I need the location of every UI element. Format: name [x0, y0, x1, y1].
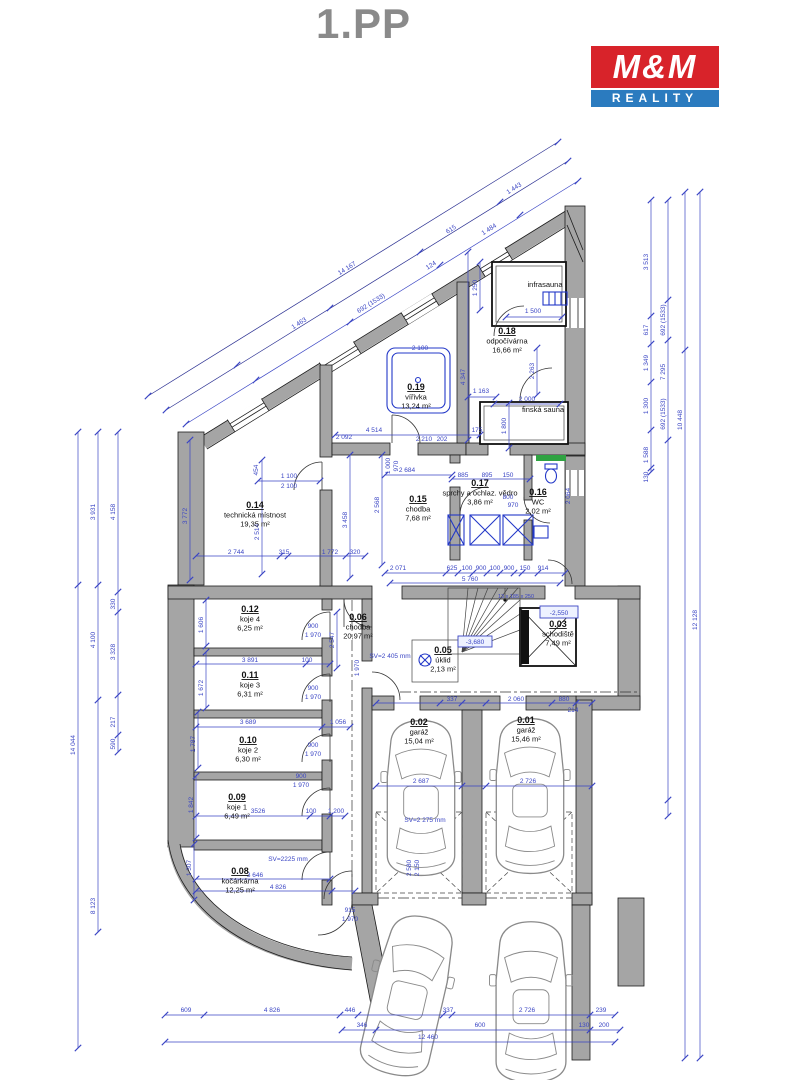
- room-number: 0.02: [410, 717, 428, 727]
- green-window-marker: [536, 455, 566, 461]
- dimension-label: 214: [568, 707, 579, 714]
- dimension-label: 100: [462, 565, 473, 572]
- dimension-label: 2 210: [416, 436, 433, 443]
- dimension-label: 2 060: [508, 696, 525, 703]
- room-number: 0.14: [246, 500, 264, 510]
- dimension-label: 1 588: [643, 446, 650, 463]
- dimension-label: 900: [308, 685, 319, 692]
- room-name: garáž: [517, 726, 536, 735]
- dimension-label: 100: [302, 657, 313, 664]
- room-number: 0.09: [228, 792, 246, 802]
- room-name: sprchy a ochlaz. vědro: [442, 489, 517, 498]
- dimension-label: 1 200: [328, 808, 345, 815]
- dimension-label: 692 (1533): [660, 304, 667, 335]
- dimension-label: 2 071: [390, 565, 407, 572]
- dimension-label: 454: [253, 464, 260, 475]
- dimension-label: 590: [110, 738, 117, 749]
- dimension-label: 900: [504, 565, 515, 572]
- dimension-label: 100: [306, 808, 317, 815]
- dimension-label: 4 514: [366, 427, 383, 434]
- room-number: 0.03: [549, 619, 567, 629]
- dimension-label: 1 443: [505, 181, 523, 196]
- dimension-label: 2 726: [520, 778, 537, 785]
- dimension-label: 2 684: [399, 467, 416, 474]
- dimension-label: 337: [443, 1007, 454, 1014]
- dimension-label: 100: [490, 565, 501, 572]
- dimension-label: 692 (1533): [356, 292, 386, 315]
- dimension-label: 900: [476, 565, 487, 572]
- room-name: chodba: [346, 623, 371, 632]
- dimension-label: 320: [350, 549, 361, 556]
- dimension-label: 900: [308, 623, 319, 630]
- level-shaft: -3,680: [466, 639, 485, 646]
- dimension-label: 1 500: [525, 308, 542, 315]
- finska-sauna-label: finská sauna: [522, 405, 565, 414]
- dimension-label: 885: [458, 472, 469, 479]
- dimension-label: 7 295: [660, 363, 667, 380]
- dimension-label: 1 970: [342, 916, 359, 923]
- dimension-label: 1 970: [293, 782, 310, 789]
- dimension-labels: 14 1671 4636151 443692 (1533)1241 4843 5…: [70, 181, 699, 1041]
- infrasauna-label: infrasauna: [527, 280, 563, 289]
- dimension-label: 2 150: [414, 859, 421, 876]
- cleaning-sink: [419, 654, 431, 666]
- dimension-label: 3 772: [182, 507, 189, 524]
- dimension-label: 130: [579, 1022, 590, 1029]
- dimension-label: 239: [596, 1007, 607, 1014]
- room-area: 20,97 m²: [343, 632, 373, 641]
- dimension-label: 2 744: [228, 549, 245, 556]
- room-area: 2,02 m²: [525, 507, 551, 516]
- room-number: 0.05: [434, 645, 452, 655]
- height-note-koje: SV=2225 mm: [268, 856, 308, 863]
- room-number: 0.18: [498, 326, 516, 336]
- dimension-label: 330: [110, 598, 117, 609]
- dimension-label: 617: [643, 324, 650, 335]
- room-name: koje 1: [227, 803, 247, 812]
- room-area: 13,24 m²: [401, 402, 431, 411]
- room-name: odpočívárna: [486, 337, 528, 346]
- dimension-label: 1 100: [281, 473, 298, 480]
- dimension-label: 200: [599, 1022, 610, 1029]
- dimension-label: 914: [538, 565, 549, 572]
- level-stair: -2,550: [550, 610, 569, 617]
- dimension-label: 4 826: [270, 884, 287, 891]
- dimension-label: 1 300: [643, 397, 650, 414]
- dimension-label: 3 891: [242, 657, 259, 664]
- room-area: 6,30 m²: [235, 755, 261, 764]
- height-note-chodba: SV=2 405 mm: [369, 653, 410, 660]
- dimension-label: 1 842: [188, 796, 195, 813]
- dimension-label: 10 448: [677, 410, 684, 430]
- dimension-label: 8 123: [90, 897, 97, 914]
- dimension-label: 1 970: [305, 694, 322, 701]
- dimension-label: 1 250: [472, 279, 479, 296]
- dimension-label: 337: [447, 696, 458, 703]
- room-name: koje 2: [238, 746, 258, 755]
- stair-note: 13 x 185 x 250: [498, 594, 534, 600]
- room-area: 12,25 m²: [225, 886, 255, 895]
- dimension-label: 609: [181, 1007, 192, 1014]
- dimension-label: 1 787: [190, 735, 197, 752]
- height-note-garage: SV=2 275 mm: [404, 817, 445, 824]
- room-number: 0.10: [239, 735, 257, 745]
- dimension-label: 1 349: [643, 354, 650, 371]
- room-area: 15,46 m²: [511, 735, 541, 744]
- dimension-label: 12 128: [692, 610, 699, 630]
- dimension-label: 315: [279, 549, 290, 556]
- room-area: 6,25 m²: [237, 624, 263, 633]
- dimension-label: 1 970: [305, 751, 322, 758]
- dimension-label: 2 100: [281, 483, 298, 490]
- dimension-label: 1 606: [198, 616, 205, 633]
- washbasin: [534, 526, 548, 538]
- toilet: [545, 464, 557, 483]
- dimension-label: 625: [447, 565, 458, 572]
- dimension-label: 1 463: [290, 316, 308, 331]
- dimension-label: 880: [559, 696, 570, 703]
- dimension-label: 446: [345, 1007, 356, 1014]
- room-number: 0.08: [231, 866, 249, 876]
- dimension-label: 3 931: [90, 503, 97, 520]
- room-name: úklid: [435, 656, 450, 665]
- room-number: 0.16: [529, 487, 547, 497]
- room-number: 0.19: [407, 382, 425, 392]
- room-name: chodba: [406, 505, 431, 514]
- dimension-label: 615: [445, 224, 458, 236]
- room-number: 0.11: [241, 670, 258, 680]
- room-area: 3,86 m²: [467, 498, 493, 507]
- dimension-label: 2 000: [519, 396, 536, 403]
- room-name: koje 3: [240, 681, 260, 690]
- room-number: 0.15: [409, 494, 427, 504]
- room-area: 6,49 m²: [224, 812, 250, 821]
- dimension-label: 3 689: [240, 719, 257, 726]
- dimension-label: 4 100: [90, 631, 97, 648]
- room-name: koje 4: [240, 615, 260, 624]
- dimension-label: 1 970: [354, 659, 361, 676]
- room-number: 0.06: [349, 612, 367, 622]
- dimension-label: 4 158: [110, 503, 117, 520]
- dimension-label: 130: [643, 471, 650, 482]
- dimension-label: 5 760: [462, 576, 479, 583]
- dimension-label: 2 263: [529, 362, 536, 379]
- dimension-label: 1 672: [198, 679, 205, 696]
- dimension-label: 150: [503, 472, 514, 479]
- room-area: 6,31 m²: [237, 690, 263, 699]
- dimension-label: 175: [472, 427, 483, 434]
- room-number: 0.01: [517, 715, 535, 725]
- window-icon: [401, 294, 439, 325]
- room-area: 16,66 m²: [492, 346, 522, 355]
- floor-plan-page: 1.PP M&M REALITY: [0, 0, 790, 1080]
- dimension-label: 1 307: [186, 859, 193, 876]
- dimension-label: 1 800: [501, 417, 508, 434]
- room-name: vířivka: [405, 393, 427, 402]
- dimension-label: 692 (1533): [660, 398, 667, 429]
- dimension-label: 970: [393, 460, 400, 471]
- dimension-label: 1 000: [385, 457, 392, 474]
- dimension-label: 202: [437, 436, 448, 443]
- dimension-label: 217: [110, 716, 117, 727]
- dimension-label: 1 056: [330, 719, 347, 726]
- dimension-label: 4 347: [460, 368, 467, 385]
- dimension-label: 346: [357, 1022, 368, 1029]
- dimension-label: 970: [508, 502, 519, 509]
- dimension-label: 14 044: [70, 735, 77, 755]
- room-name: kočárkárna: [221, 877, 259, 886]
- dimension-label: 3 513: [643, 253, 650, 270]
- dimension-label: 1 484: [480, 222, 498, 237]
- room-name: garáž: [410, 728, 429, 737]
- dimension-label: 900: [296, 773, 307, 780]
- window-icon: [566, 298, 584, 328]
- car-driveway-right: [489, 922, 572, 1080]
- dimension-label: 1 163: [473, 388, 490, 395]
- room-area: 15,04 m²: [404, 737, 434, 746]
- dimension-label: 1 772: [322, 549, 339, 556]
- room-area: 19,35 m²: [240, 520, 270, 529]
- room-name: schodiště: [542, 630, 574, 639]
- room-number: 0.17: [471, 478, 489, 488]
- room-number: 0.12: [241, 604, 259, 614]
- dimension-label: 2 092: [336, 434, 353, 441]
- room-name: WC: [532, 498, 545, 507]
- dimension-label: 2 100: [412, 345, 429, 352]
- room-name: technická místnost: [224, 511, 287, 520]
- dimension-label: 124: [425, 260, 438, 272]
- dimension-label: 3 458: [342, 511, 349, 528]
- dimension-label: 2 568: [374, 496, 381, 513]
- room-area: 7,68 m²: [405, 514, 431, 523]
- shower-stalls: [448, 515, 533, 545]
- dimension-label: 3526: [251, 808, 266, 815]
- dimension-label: 2 064: [565, 487, 572, 504]
- room-area: 2,13 m²: [430, 665, 456, 674]
- room-area: 7,49 m²: [545, 639, 571, 648]
- dimension-label: 2 726: [519, 1007, 536, 1014]
- dimension-label: 14 167: [337, 260, 358, 277]
- dimension-label: 4 826: [264, 1007, 281, 1014]
- dimension-label: 915: [345, 907, 356, 914]
- dimension-label: 3 328: [110, 643, 117, 660]
- dimension-label: 12 460: [418, 1034, 438, 1041]
- dimension-label: 900: [308, 742, 319, 749]
- dimension-label: 2 547: [329, 631, 336, 648]
- dimension-label: 1 970: [305, 632, 322, 639]
- dimension-label: 2 687: [413, 778, 430, 785]
- dimension-label: 600: [475, 1022, 486, 1029]
- dimension-label: 2 580: [406, 859, 413, 876]
- dimension-label: 150: [520, 565, 531, 572]
- floor-plan-drawing: -2,550 -3,680 13 x 185 x 250 infrasauna …: [0, 0, 790, 1080]
